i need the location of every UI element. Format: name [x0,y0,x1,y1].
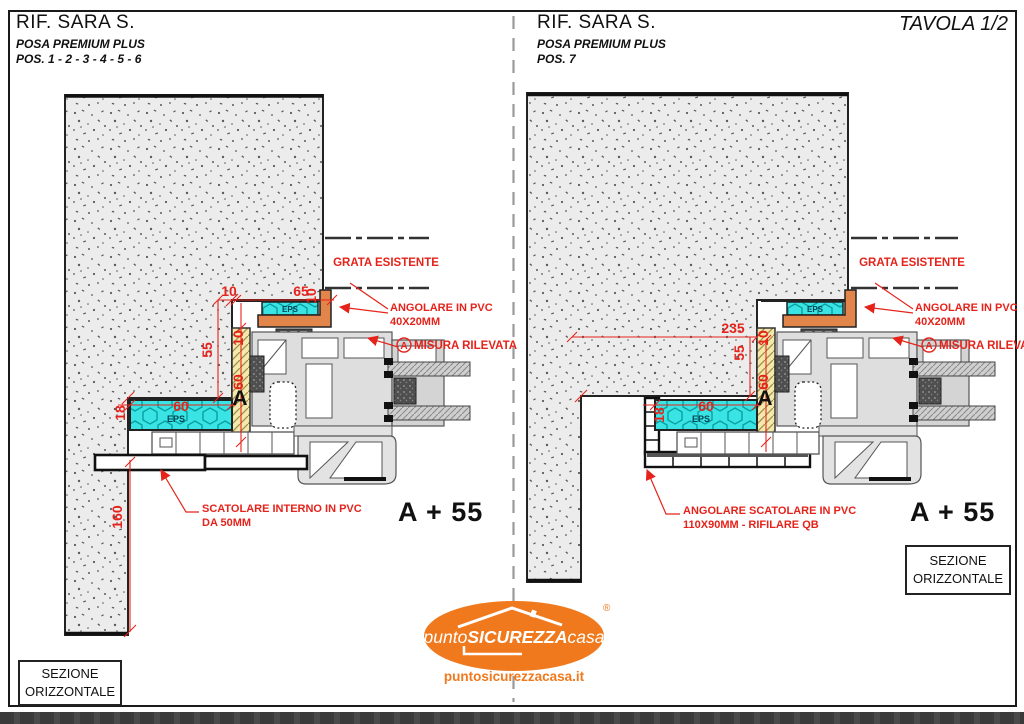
grate-annotation: GRATA ESISTENTE [333,257,439,269]
angle-box-annotation-line2: 110X90MM - RIFILARE QB [683,519,819,531]
logo-wordmark: puntoSICUREZZAcasa [423,627,605,647]
section-label-line1: SEZIONE [907,552,1009,570]
company-logo: puntoSICUREZZAcasa ® puntosicurezzacasa.… [423,601,611,684]
pvc-angle-annotation-line2: 40X20MM [390,316,440,328]
quota-label: A + 55 [910,497,995,527]
drawing-sheet: RIF. SARA S. POSA PREMIUM PLUS POS. 1 - … [0,0,1024,724]
dim-18: 18 [112,405,128,421]
logo-word-sicurezza: SICUREZZA [467,627,567,647]
dim-235: 235 [721,320,745,336]
section-label-line2: ORIZZONTALE [20,683,120,701]
section-label-line1: SEZIONE [20,665,120,683]
measured-dimension-annotation: MISURA RILEVATA [939,340,1024,352]
dim-10-strip: 10 [230,330,246,346]
section-label-line2: ORIZZONTALE [907,570,1009,588]
dim-10: 10 [221,283,237,299]
dim-60-eps: 60 [173,398,189,414]
dim-55: 55 [199,342,215,358]
dim-55: 55 [731,345,747,361]
eps-label-top: EPS [282,305,299,314]
pvc-angle-annotation-line1: ANGOLARE IN PVC [915,302,1018,314]
grate-annotation: GRATA ESISTENTE [859,257,965,269]
screen-edge-strip [0,712,1024,724]
pvc-angle-annotation-line1: ANGOLARE IN PVC [390,302,493,314]
box-profile-annotation-line2: DA 50MM [202,517,251,529]
logo-word-casa: casa [567,627,604,647]
measured-point-letter: A [925,341,932,352]
dim-60-eps: 60 [698,398,714,414]
section-label-left: SEZIONE ORIZZONTALE [18,660,122,706]
quota-label: A + 55 [398,497,483,527]
technical-drawing: 10 65 10 55 10 60 A 60 18 160 EPS EPS GR… [0,0,1024,724]
section-view-left: 10 65 10 55 10 60 A 60 18 160 EPS EPS GR… [65,95,517,637]
dim-160: 160 [109,505,125,529]
pvc-angle-annotation-line2: 40X20MM [915,316,965,328]
measured-dimension-annotation: MISURA RILEVATA [414,340,517,352]
eps-label-top: EPS [807,305,824,314]
angle-box-annotation-line1: ANGOLARE SCATOLARE IN PVC [683,505,856,517]
measured-point-letter: A [400,341,407,352]
dim-18: 18 [651,407,667,423]
box-profile-annotation-line1: SCATOLARE INTERNO IN PVC [202,503,362,515]
eps-label-bottom: EPS [167,414,185,424]
eps-label-bottom: EPS [692,414,710,424]
section-label-right: SEZIONE ORIZZONTALE [905,545,1011,595]
point-a-marker: A [232,387,247,410]
dim-10-strip: 10 [755,330,771,346]
logo-word-punto: punto [423,627,468,647]
point-a-marker: A [757,387,772,410]
dim-10-vert: 10 [303,288,319,304]
inner-box-profile [95,455,307,470]
logo-website: puntosicurezzacasa.it [444,669,585,684]
registered-mark: ® [603,603,611,614]
section-view-right: 235 10 55 60 A 60 18 EPS EPS GRATA ESIST… [527,93,1024,582]
